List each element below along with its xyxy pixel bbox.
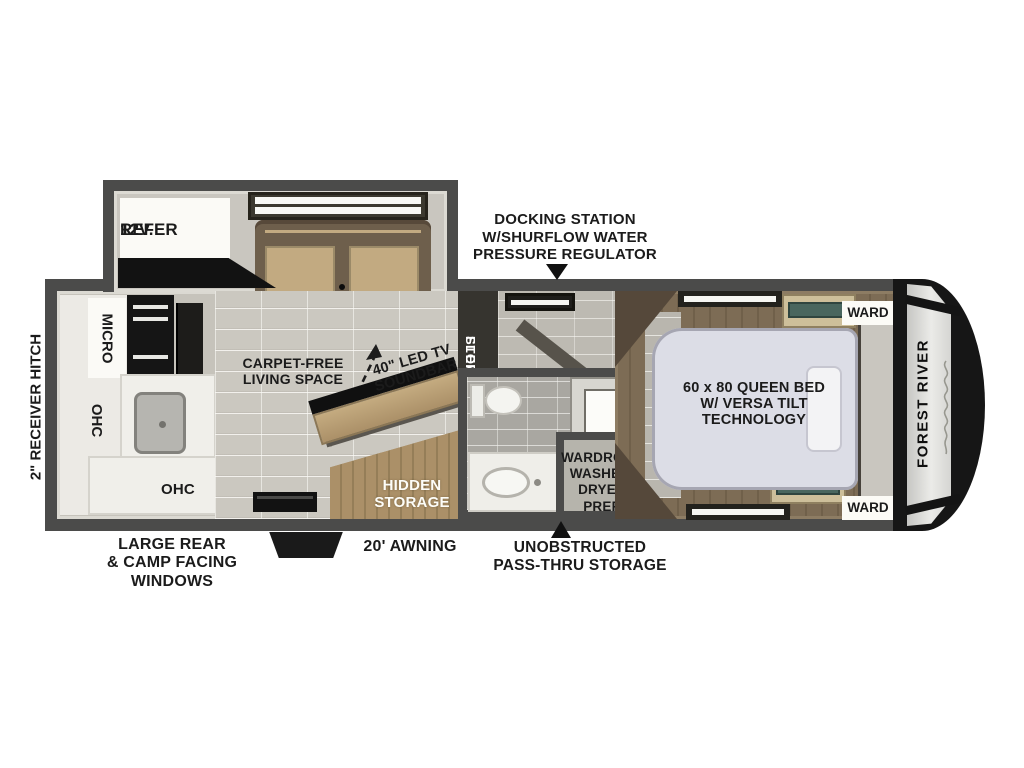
sink-drain — [159, 421, 166, 428]
pass-thru-label: UNOBSTRUCTED PASS-THRU STORAGE — [487, 539, 673, 575]
window-pane — [255, 207, 421, 214]
vanity-faucet — [534, 479, 541, 486]
pantry-cabinet — [176, 303, 203, 375]
entry-step — [266, 532, 346, 558]
micro-label: MICRO — [99, 313, 116, 363]
microwave-label-box: MICRO — [88, 298, 126, 378]
bathroom-vanity — [468, 452, 558, 512]
refrigerator-label-box: 12V. REFER — [120, 198, 230, 261]
ohc-upper-label: OHC — [84, 392, 110, 448]
slideout-window — [248, 192, 428, 220]
refer-label-line: REFER — [120, 220, 178, 239]
vanity-sink — [482, 467, 530, 498]
awning-label: 20' AWNING — [352, 538, 468, 556]
wardrobe-bottom-label-box: WARD — [842, 496, 894, 520]
rv-floorplan-diagram: 12V. REFER THEATER SEATING DOCKING STATI… — [0, 0, 1024, 768]
wardrobe-top-label-box: WARD — [842, 301, 894, 325]
seat-back-trim — [265, 230, 421, 233]
bedroom-window-bottom — [686, 504, 790, 520]
brand-logo-text: FOREST RIVER — [915, 324, 932, 484]
hidden-storage-label: HIDDEN STORAGE — [360, 478, 464, 512]
docking-station-label: DOCKING STATION W/SHURFLOW WATER PRESSUR… — [455, 211, 675, 264]
window-pane — [255, 197, 421, 204]
skylight-window — [505, 293, 575, 311]
bench-window — [788, 302, 850, 318]
queen-bed-label: 60 x 80 QUEEN BED W/ VERSA TILT TECHNOLO… — [664, 380, 844, 429]
toilet-tank — [470, 384, 485, 418]
range-oven — [127, 295, 174, 375]
kitchen-sink — [134, 392, 186, 454]
brand-script-logo — [939, 357, 953, 457]
rear-windows-label: LARGE REAR & CAMP FACING WINDOWS — [92, 536, 252, 591]
toilet — [485, 386, 522, 415]
seat-button — [339, 284, 345, 290]
ohc-lower-label: OHC — [146, 482, 210, 499]
entry-door — [253, 492, 317, 512]
docking-callout-arrow-icon — [546, 264, 568, 280]
front-wall-cabinet — [858, 312, 896, 508]
pass-thru-callout-arrow-icon — [551, 521, 571, 538]
bedroom-window-top — [678, 291, 782, 307]
front-cap: FOREST RIVER — [893, 279, 985, 531]
